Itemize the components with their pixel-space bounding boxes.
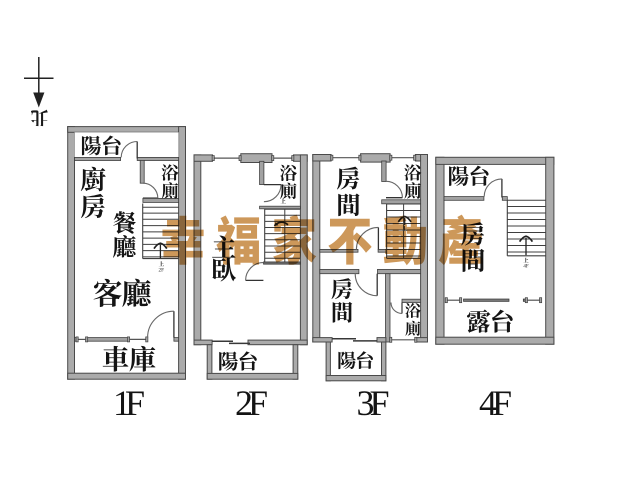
svg-text:4F: 4F: [479, 383, 512, 423]
svg-text:4F: 4F: [523, 265, 529, 270]
svg-text:2F: 2F: [235, 383, 268, 423]
svg-text:1F: 1F: [113, 383, 145, 423]
svg-text:2F: 2F: [159, 268, 165, 274]
svg-text:3F: 3F: [357, 383, 390, 423]
